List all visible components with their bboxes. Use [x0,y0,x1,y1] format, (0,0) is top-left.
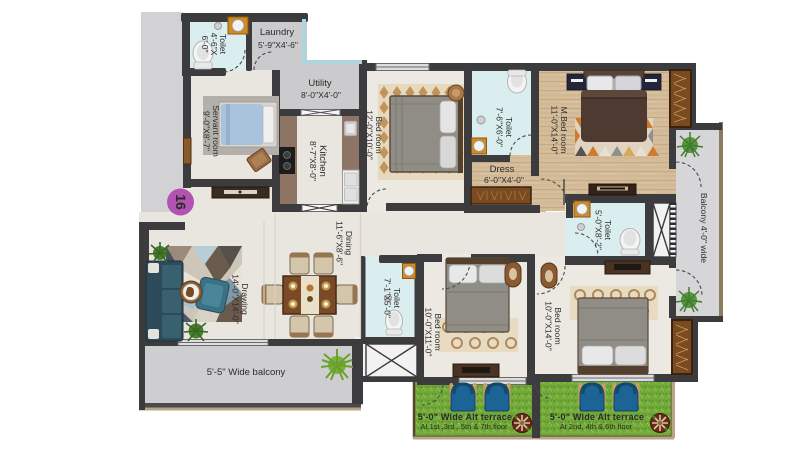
svg-text:5'-0" Wide Alt terrace: 5'-0" Wide Alt terrace [550,412,644,422]
svg-text:7'-1"X5'-0": 7'-1"X5'-0" [383,278,393,318]
svg-text:Balcony 4'-0" wide: Balcony 4'-0" wide [699,193,709,263]
svg-text:Toilet: Toilet [392,288,402,309]
svg-text:5'-0" Wide Alt terrace: 5'-0" Wide Alt terrace [418,412,512,422]
svg-text:Drawing: Drawing [240,283,250,315]
svg-text:Dining: Dining [344,231,354,256]
svg-text:9'-0"X8'-7": 9'-0"X8'-7" [202,111,212,151]
svg-text:14'-0"X14'-0": 14'-0"X14'-0" [231,274,241,324]
svg-text:Laundry: Laundry [260,27,295,38]
svg-text:Toilet: Toilet [603,220,613,241]
svg-text:11'-0"X14'-0": 11'-0"X14'-0" [550,106,560,155]
svg-text:Servant room: Servant room [211,105,221,157]
svg-text:At 2nd, 4th & 6th floor: At 2nd, 4th & 6th floor [560,422,633,431]
svg-text:16: 16 [173,194,189,210]
svg-text:Utility: Utility [308,78,331,89]
svg-text:10'-0"X11'-0": 10'-0"X11'-0" [424,308,434,357]
svg-text:10'-0"X14'-0": 10'-0"X14'-0" [544,301,554,351]
svg-text:Bed room: Bed room [553,307,563,344]
svg-text:11'-6"X8'-6": 11'-6"X8'-6" [335,221,345,265]
svg-text:Bed room: Bed room [433,313,443,350]
svg-text:Bed room: Bed room [374,116,384,153]
svg-text:8'-0"X4'-0": 8'-0"X4'-0" [301,90,341,100]
svg-text:7'-6"X6'-0": 7'-6"X6'-0" [495,107,505,147]
svg-text:12'-0"X10'-0": 12'-0"X10'-0" [365,110,375,160]
svg-text:5'-0"X8'-2": 5'-0"X8'-2" [594,210,604,250]
svg-text:6'-0": 6'-0" [200,35,210,52]
svg-text:8'-7"X8'-0": 8'-7"X8'-0" [308,141,318,181]
svg-text:M.Bed room: M.Bed room [559,107,569,154]
svg-text:At 1st ,3rd , 5th & 7th floor: At 1st ,3rd , 5th & 7th floor [420,422,508,431]
svg-text:Toilet: Toilet [504,117,514,138]
svg-text:5'-5" Wide balcony: 5'-5" Wide balcony [207,367,286,378]
svg-text:6'-0"X4'-0": 6'-0"X4'-0" [484,175,524,185]
svg-text:Dress: Dress [490,164,515,175]
svg-text:5'-9"X4'-6": 5'-9"X4'-6" [258,40,298,50]
